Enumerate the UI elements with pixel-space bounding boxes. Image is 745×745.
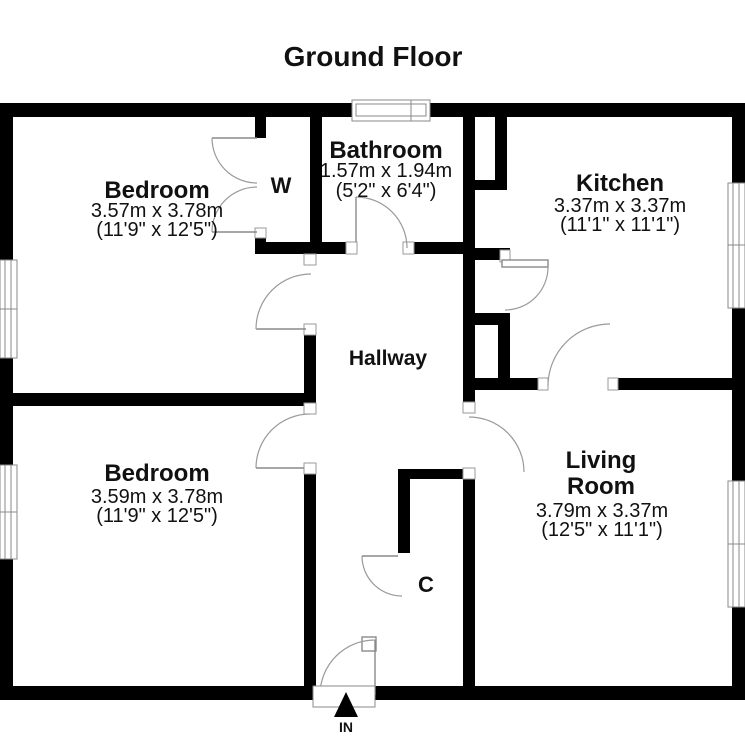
- wardrobe-label: W: [271, 173, 292, 198]
- bathroom-metric: 1.57m x 1.94m: [320, 160, 452, 182]
- room-label-bedroom1: Bedroom 3.57m x 3.78m (11'9" x 12'5"): [91, 177, 223, 241]
- window-left-bedroom2: [0, 465, 17, 559]
- bedroom1-imperial: (11'9" x 12'5"): [96, 219, 218, 241]
- window-right-living: [728, 481, 745, 607]
- window-top: [352, 100, 430, 121]
- living-room-name-line2: Room: [567, 473, 635, 500]
- bathroom-imperial: (5'2" x 6'4"): [336, 180, 437, 202]
- cupboard-label: C: [418, 572, 434, 597]
- hallway-label: Hallway: [349, 347, 428, 370]
- bedroom2-imperial: (11'9" x 12'5"): [96, 505, 218, 527]
- living-room-name-line1: Living: [566, 447, 637, 474]
- kitchen-imperial: (11'1" x 11'1"): [560, 214, 680, 236]
- page-title: Ground Floor: [284, 41, 463, 72]
- window-left-bedroom1: [0, 260, 17, 358]
- bedroom2-name: Bedroom: [104, 460, 209, 487]
- living-room-imperial: (12'5" x 11'1"): [541, 519, 663, 541]
- kitchen-name: Kitchen: [576, 170, 664, 197]
- room-label-bedroom2: Bedroom 3.59m x 3.78m (11'9" x 12'5"): [91, 460, 223, 527]
- entrance-in-label: IN: [339, 719, 353, 735]
- floor-plan: Ground Floor Bedroom 3.57m x 3.78m (11'9…: [0, 0, 745, 745]
- room-label-bathroom: Bathroom 1.57m x 1.94m (5'2" x 6'4"): [320, 137, 452, 202]
- floor-plan-svg: Ground Floor Bedroom 3.57m x 3.78m (11'9…: [0, 0, 745, 745]
- window-right-kitchen: [728, 183, 745, 308]
